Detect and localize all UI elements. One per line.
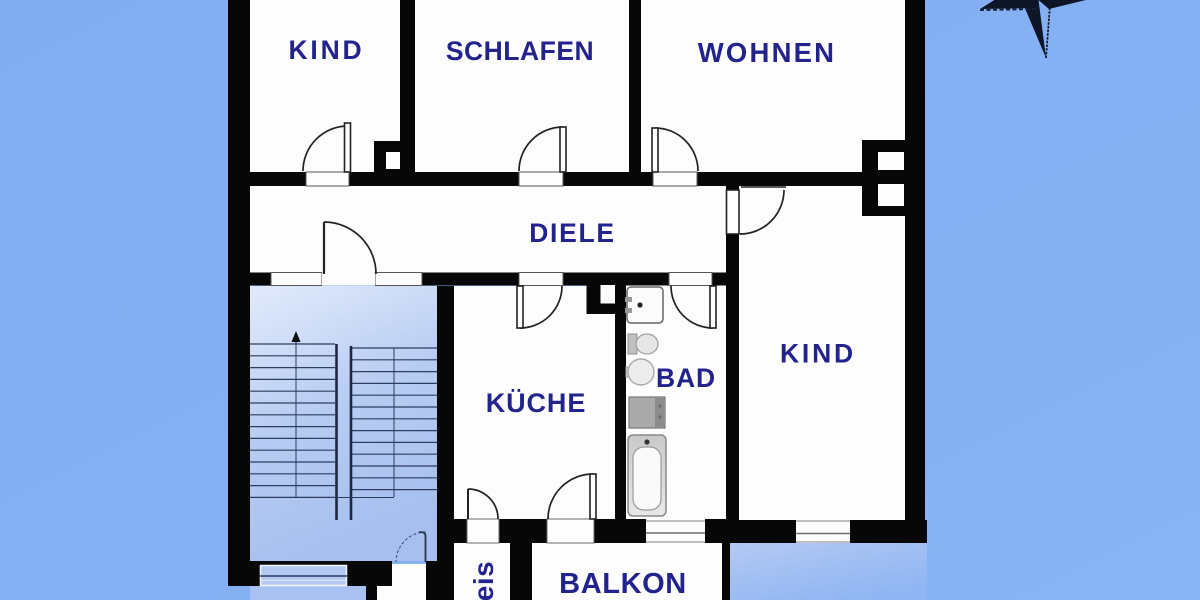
svg-text:KÜCHE: KÜCHE: [486, 388, 587, 418]
svg-text:WOHNEN: WOHNEN: [698, 37, 836, 68]
svg-text:DIELE: DIELE: [529, 218, 616, 248]
svg-text:BALKON: BALKON: [559, 568, 687, 600]
svg-text:KIND: KIND: [289, 35, 365, 65]
svg-text:SCHLAFEN: SCHLAFEN: [446, 36, 594, 66]
svg-text:Speis: Speis: [468, 561, 499, 600]
svg-text:BAD: BAD: [656, 363, 716, 393]
svg-text:KIND: KIND: [780, 339, 856, 369]
